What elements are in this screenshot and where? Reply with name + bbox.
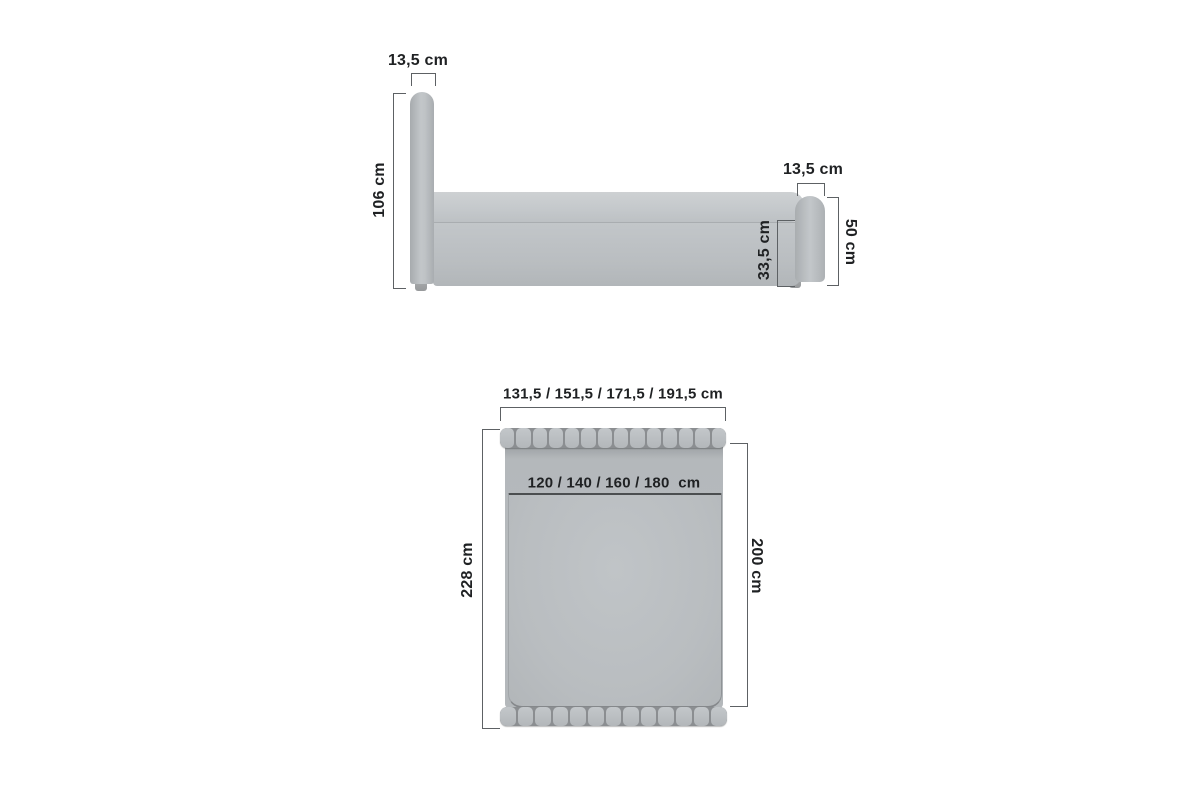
mattress-length-bracket — [730, 443, 748, 707]
topview-footboard — [500, 707, 727, 726]
topview-headboard — [500, 428, 726, 448]
headboard-slat — [533, 428, 547, 448]
mattress-length-label: 200 cm — [748, 538, 764, 593]
footboard-slat — [588, 707, 604, 726]
total-length-label: 228 cm — [460, 542, 476, 597]
footboard-slat — [676, 707, 692, 726]
total-length-bracket — [482, 429, 500, 729]
footboard-slat — [500, 707, 516, 726]
footboard-slat — [518, 707, 534, 726]
footboard-slat — [570, 707, 586, 726]
headboard-height-bracket — [393, 93, 406, 289]
headboard-slat — [581, 428, 595, 448]
headboard-slat — [565, 428, 579, 448]
footboard-slat — [694, 707, 710, 726]
headboard-slat — [695, 428, 709, 448]
footboard-slat — [641, 707, 657, 726]
headboard-slat — [679, 428, 693, 448]
headboard-width-label: 13,5 cm — [388, 53, 448, 69]
frame-height-label: 33,5 cm — [757, 220, 773, 280]
headboard-slat — [516, 428, 530, 448]
footboard-slat — [711, 707, 727, 726]
mattress-side — [424, 192, 804, 222]
headboard-width-bracket — [411, 73, 436, 86]
footboard-width-bracket — [797, 183, 825, 196]
footboard-width-label: 13,5 cm — [783, 162, 843, 178]
headboard-slat — [712, 428, 726, 448]
footboard-slat — [623, 707, 639, 726]
bed-dimension-diagram: 13,5 cm 106 cm 13,5 cm 33,5 cm 50 cm 131… — [0, 0, 1200, 800]
headboard-slat — [663, 428, 677, 448]
headboard-slat — [630, 428, 644, 448]
footboard-slat — [535, 707, 551, 726]
footboard-side — [795, 196, 825, 282]
headboard-side — [410, 92, 434, 284]
mattress-top — [508, 493, 722, 708]
headboard-slat — [598, 428, 612, 448]
bed-frame-side — [433, 222, 801, 286]
footboard-slat — [606, 707, 622, 726]
headboard-slat — [647, 428, 661, 448]
mattress-width-label: 120 / 140 / 160 / 180 cm — [528, 476, 701, 491]
footboard-height-bracket — [827, 197, 839, 286]
frame-height-bracket — [777, 220, 795, 287]
headboard-slat — [614, 428, 628, 448]
total-width-label: 131,5 / 151,5 / 171,5 / 191,5 cm — [503, 387, 723, 402]
headboard-slat — [500, 428, 514, 448]
footboard-slat — [658, 707, 674, 726]
total-width-bracket — [500, 407, 726, 421]
footboard-height-label: 50 cm — [842, 219, 858, 265]
headboard-height-label: 106 cm — [372, 162, 388, 217]
headboard-slat — [549, 428, 563, 448]
footboard-slat — [553, 707, 569, 726]
